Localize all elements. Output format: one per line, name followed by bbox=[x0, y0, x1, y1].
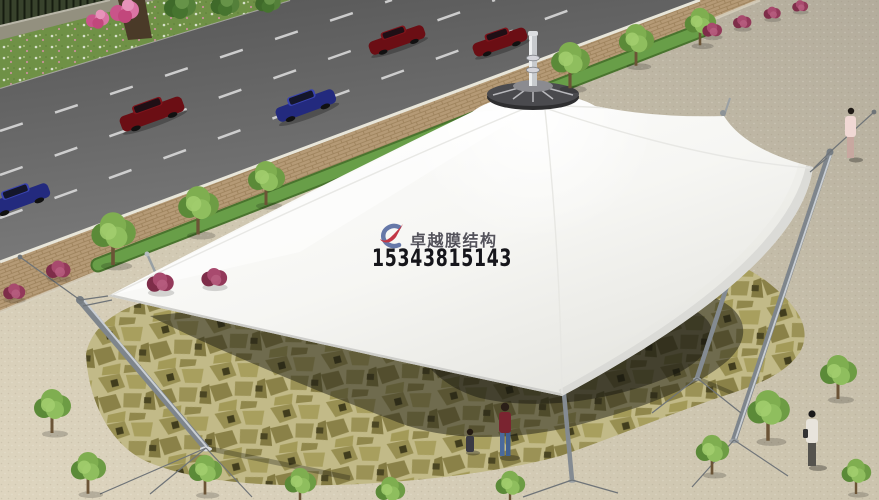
scene-artwork bbox=[0, 0, 879, 500]
render-scene: 卓越膜结构 15343815143 bbox=[0, 0, 879, 500]
